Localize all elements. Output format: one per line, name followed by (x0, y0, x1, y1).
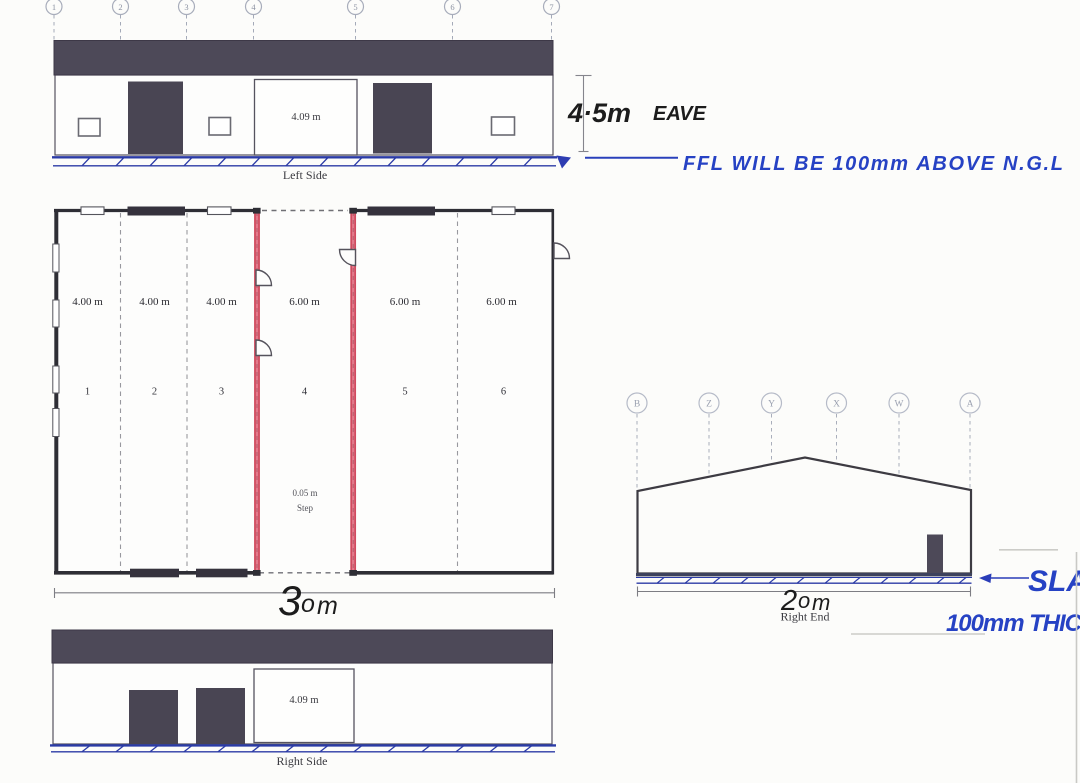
svg-text:6.00 m: 6.00 m (486, 296, 517, 308)
svg-text:EAVE: EAVE (653, 103, 707, 125)
svg-text:o: o (301, 590, 315, 618)
svg-text:FFL WILL BE 100mm ABOVE N.G.L: FFL WILL BE 100mm ABOVE N.G.L (683, 153, 1063, 175)
svg-text:2: 2 (152, 387, 157, 398)
svg-text:6.00 m: 6.00 m (390, 296, 421, 308)
svg-text:1: 1 (85, 387, 90, 398)
svg-text:4.00 m: 4.00 m (72, 296, 103, 308)
svg-text:4·5m: 4·5m (567, 98, 631, 128)
svg-text:3: 3 (278, 577, 301, 624)
svg-text:100mm THIC: 100mm THIC (946, 610, 1080, 637)
svg-text:6.00 m: 6.00 m (289, 296, 320, 308)
svg-text:6: 6 (450, 2, 454, 12)
svg-text:5: 5 (353, 2, 357, 12)
svg-text:Z: Z (706, 400, 712, 410)
svg-text:SLAB: SLAB (1028, 565, 1080, 598)
svg-text:Step: Step (297, 503, 314, 513)
svg-text:X: X (833, 400, 840, 410)
svg-text:4.09 m: 4.09 m (291, 112, 320, 123)
svg-text:Y: Y (768, 400, 775, 410)
svg-text:0.05 m: 0.05 m (292, 488, 317, 498)
svg-text:3: 3 (184, 2, 188, 12)
svg-text:W: W (895, 400, 904, 410)
svg-text:6: 6 (501, 387, 506, 398)
svg-text:7: 7 (549, 2, 553, 12)
svg-text:1: 1 (52, 2, 56, 12)
svg-text:4: 4 (302, 387, 308, 398)
svg-text:4.00 m: 4.00 m (206, 296, 237, 308)
svg-text:B: B (634, 400, 640, 410)
svg-text:m: m (317, 592, 338, 620)
svg-text:5: 5 (402, 387, 407, 398)
svg-text:2: 2 (118, 2, 122, 12)
svg-text:4.09 m: 4.09 m (289, 695, 318, 706)
svg-text:Left Side: Left Side (283, 168, 327, 182)
svg-text:4.00 m: 4.00 m (139, 296, 170, 308)
svg-text:3: 3 (219, 387, 224, 398)
svg-text:Right End: Right End (780, 610, 829, 624)
svg-text:A: A (967, 400, 974, 410)
svg-text:Right Side: Right Side (276, 754, 327, 768)
